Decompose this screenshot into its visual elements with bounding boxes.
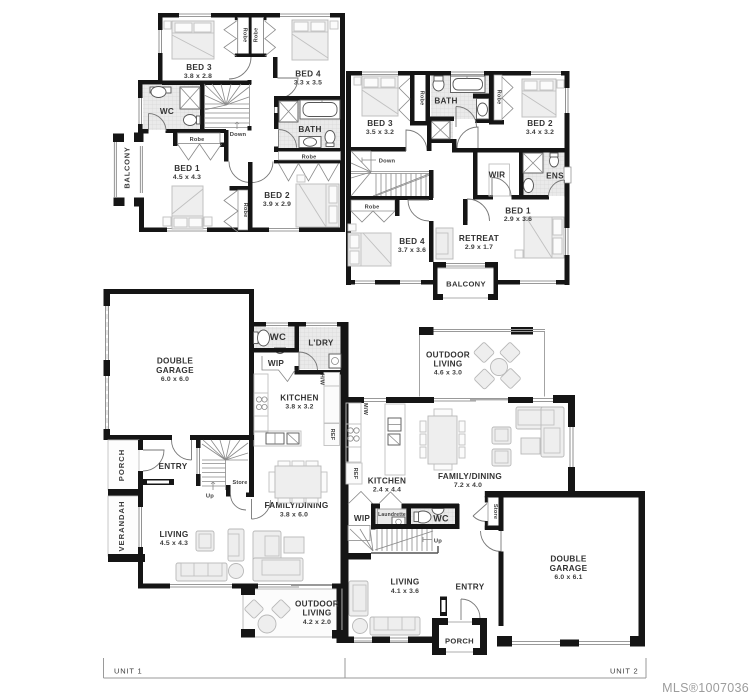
svg-text:Robe: Robe: [190, 137, 205, 143]
svg-text:L’DRY: L’DRY: [308, 339, 334, 348]
svg-text:M/W: M/W: [362, 403, 368, 416]
svg-text:Down: Down: [379, 159, 396, 165]
svg-text:H/W: H/W: [319, 374, 325, 386]
svg-text:PORCH: PORCH: [117, 449, 126, 481]
svg-text:WC: WC: [160, 107, 174, 116]
svg-text:Robe: Robe: [242, 28, 248, 43]
svg-text:OUTDOOR: OUTDOOR: [426, 351, 470, 360]
svg-text:WIR: WIR: [489, 171, 506, 180]
svg-text:BED 4: BED 4: [399, 237, 425, 246]
svg-text:6.0 x 6.0: 6.0 x 6.0: [161, 376, 189, 383]
svg-text:6.0 x 6.1: 6.0 x 6.1: [554, 574, 582, 581]
svg-text:4.5 x 4.3: 4.5 x 4.3: [160, 540, 188, 547]
svg-text:BATH: BATH: [298, 125, 321, 134]
svg-text:BED 4: BED 4: [295, 70, 321, 79]
svg-text:REF: REF: [352, 468, 358, 480]
svg-text:BED 3: BED 3: [186, 63, 212, 72]
svg-text:4.1 x 3.6: 4.1 x 3.6: [391, 588, 419, 595]
svg-text:BALCONY: BALCONY: [123, 146, 132, 188]
svg-text:BED 1: BED 1: [505, 207, 531, 216]
svg-text:LIVING: LIVING: [302, 609, 331, 618]
svg-text:KITCHEN: KITCHEN: [368, 477, 407, 486]
svg-text:LIVING: LIVING: [159, 530, 188, 539]
svg-text:BED 3: BED 3: [367, 119, 393, 128]
svg-text:Up: Up: [206, 494, 214, 500]
svg-text:3.7 x 3.6: 3.7 x 3.6: [398, 247, 426, 254]
svg-text:4.2 x 2.0: 4.2 x 2.0: [303, 619, 331, 626]
svg-text:BALCONY: BALCONY: [446, 280, 486, 289]
svg-text:3.5 x 3.2: 3.5 x 3.2: [366, 129, 394, 136]
svg-text:BED 2: BED 2: [527, 119, 553, 128]
svg-text:ENTRY: ENTRY: [159, 462, 188, 471]
svg-text:3.9 x 2.9: 3.9 x 2.9: [263, 201, 291, 208]
svg-text:2.9 x 1.7: 2.9 x 1.7: [465, 244, 493, 251]
svg-text:WC: WC: [270, 332, 286, 343]
svg-text:REF: REF: [329, 429, 335, 441]
svg-text:4.6 x 3.0: 4.6 x 3.0: [434, 370, 462, 377]
svg-text:3.3 x 3.5: 3.3 x 3.5: [294, 80, 322, 87]
svg-text:Robe: Robe: [365, 205, 380, 211]
svg-text:Store: Store: [492, 504, 498, 519]
svg-text:WC: WC: [433, 514, 449, 524]
svg-text:GARAGE: GARAGE: [156, 366, 194, 375]
svg-text:WIP: WIP: [354, 514, 371, 523]
svg-text:Robe: Robe: [419, 91, 425, 106]
svg-text:VERANDAH: VERANDAH: [117, 500, 126, 551]
svg-text:4.5 x 4.3: 4.5 x 4.3: [173, 174, 201, 181]
svg-text:ENTRY: ENTRY: [456, 583, 485, 592]
svg-text:RETREAT: RETREAT: [459, 234, 499, 243]
svg-text:Down: Down: [230, 132, 247, 138]
svg-text:Up: Up: [434, 539, 442, 545]
svg-text:DOUBLE: DOUBLE: [550, 555, 587, 564]
svg-text:PORCH: PORCH: [445, 637, 474, 646]
svg-text:Robe: Robe: [496, 90, 502, 105]
svg-text:KITCHEN: KITCHEN: [280, 394, 319, 403]
svg-text:BATH: BATH: [434, 97, 457, 106]
svg-text:7.2 x 4.0: 7.2 x 4.0: [454, 482, 482, 489]
svg-text:3.8 x 2.8: 3.8 x 2.8: [184, 73, 212, 80]
svg-text:FAMILY/DINING: FAMILY/DINING: [438, 472, 502, 481]
svg-text:LIVING: LIVING: [390, 578, 419, 587]
svg-text:LIVING: LIVING: [433, 360, 462, 369]
svg-text:UNIT 1: UNIT 1: [114, 667, 142, 676]
svg-text:ENS: ENS: [546, 172, 564, 181]
svg-text:Robe: Robe: [302, 155, 317, 161]
svg-text:Store: Store: [232, 480, 247, 486]
svg-text:2.4 x 4.4: 2.4 x 4.4: [373, 487, 401, 494]
svg-text:2.9 x 3.6: 2.9 x 3.6: [504, 216, 532, 223]
svg-text:3.4 x 3.2: 3.4 x 3.2: [526, 129, 554, 136]
svg-text:Robe: Robe: [242, 203, 248, 218]
svg-text:BED 1: BED 1: [174, 164, 200, 173]
svg-text:UNIT 2: UNIT 2: [610, 667, 638, 676]
svg-text:3.8 x 6.0: 3.8 x 6.0: [280, 512, 308, 519]
svg-text:MLS®1007036: MLS®1007036: [662, 681, 749, 695]
svg-text:OUTDOOR: OUTDOOR: [295, 600, 339, 609]
svg-text:BED 2: BED 2: [264, 191, 290, 200]
svg-text:DOUBLE: DOUBLE: [157, 357, 194, 366]
svg-text:Robe: Robe: [254, 28, 260, 43]
svg-text:3.8 x 3.2: 3.8 x 3.2: [285, 404, 313, 411]
svg-text:GARAGE: GARAGE: [550, 564, 588, 573]
svg-text:WIP: WIP: [268, 359, 285, 368]
